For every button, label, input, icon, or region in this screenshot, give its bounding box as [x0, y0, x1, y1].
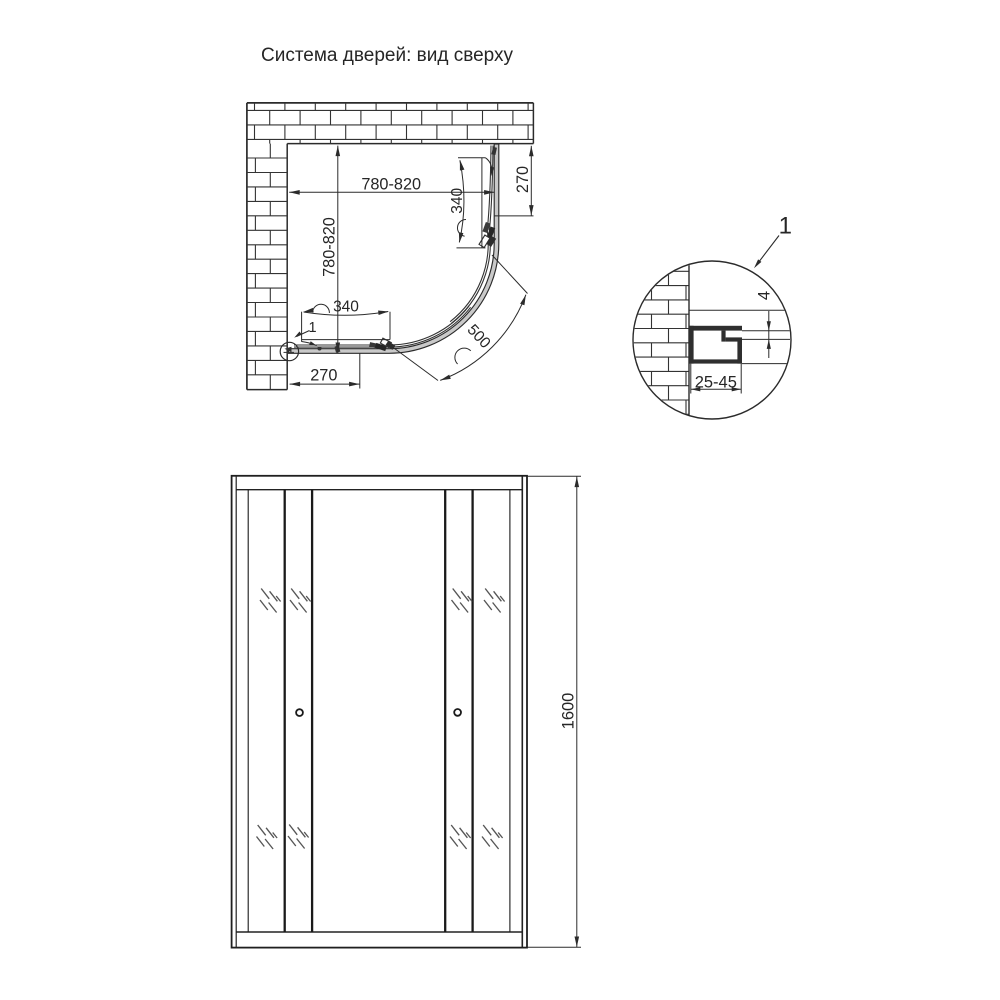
- svg-text:25-45: 25-45: [695, 373, 737, 391]
- svg-text:1600: 1600: [560, 693, 578, 730]
- svg-text:270: 270: [514, 166, 532, 193]
- svg-text:780-820: 780-820: [361, 176, 421, 194]
- svg-text:270: 270: [310, 367, 337, 385]
- svg-text:340: 340: [449, 187, 466, 213]
- svg-text:1: 1: [779, 213, 792, 240]
- svg-text:340: 340: [333, 299, 359, 316]
- svg-text:4: 4: [755, 291, 773, 300]
- svg-text:Система дверей: вид сверху: Система дверей: вид сверху: [261, 45, 514, 66]
- svg-text:780-820: 780-820: [320, 217, 338, 277]
- svg-text:1: 1: [308, 320, 316, 336]
